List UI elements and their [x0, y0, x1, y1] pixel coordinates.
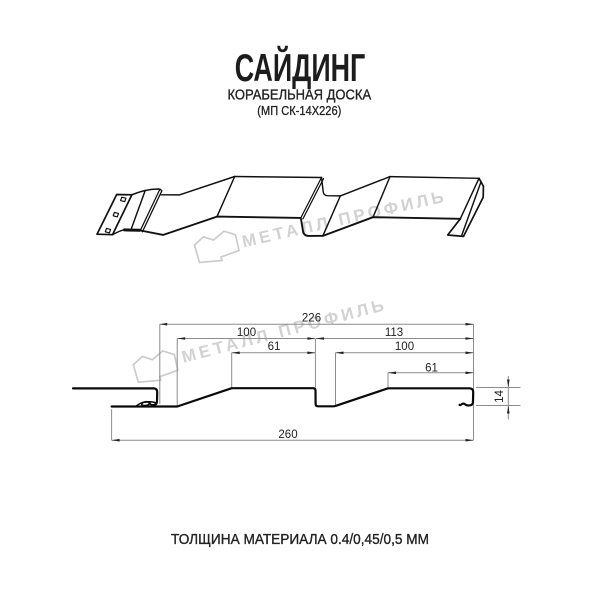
svg-text:ТОЛЩИНА МАТЕРИАЛА 0.4/0,45/0,5: ТОЛЩИНА МАТЕРИАЛА 0.4/0,45/0,5 ММ: [171, 531, 429, 548]
svg-text:61: 61: [268, 341, 281, 353]
svg-text:САЙДИНГ: САЙДИНГ: [235, 45, 366, 90]
svg-text:100: 100: [237, 327, 256, 339]
svg-text:113: 113: [385, 327, 403, 339]
svg-text:226: 226: [302, 313, 321, 325]
svg-text:14: 14: [494, 390, 506, 403]
svg-text:МЕТАЛЛ ПРОФИЛЬ: МЕТАЛЛ ПРОФИЛЬ: [240, 187, 445, 251]
svg-text:МЕТАЛЛ ПРОФИЛЬ: МЕТАЛЛ ПРОФИЛЬ: [180, 296, 386, 367]
svg-text:100: 100: [395, 341, 414, 353]
svg-text:61: 61: [425, 363, 438, 375]
svg-text:260: 260: [278, 429, 297, 441]
svg-text:(МП СК-14Х226): (МП СК-14Х226): [257, 104, 341, 118]
svg-text:КОРАБЕЛЬНАЯ ДОСКА: КОРАБЕЛЬНАЯ ДОСКА: [227, 87, 371, 104]
